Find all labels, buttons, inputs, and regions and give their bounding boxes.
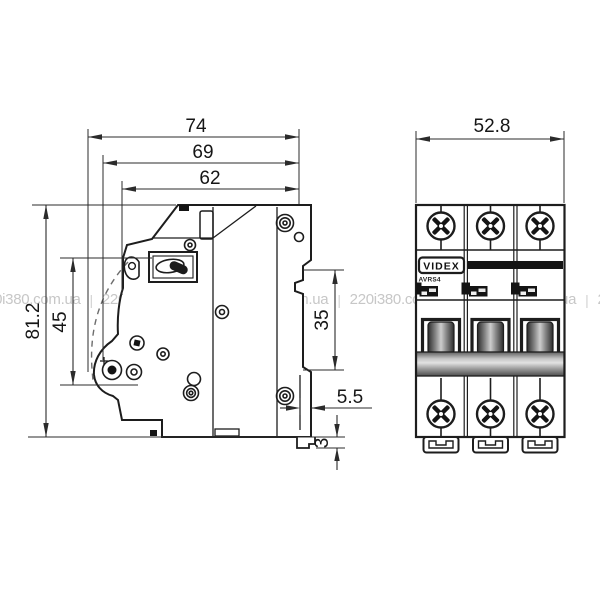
breaker-lever	[478, 322, 504, 354]
breaker-drawing: VIDEX AVRS4	[0, 0, 600, 600]
model-label: AVRS4	[419, 277, 441, 284]
dim-label-45: 45	[50, 311, 71, 332]
dim-din-slot-35: 35	[312, 270, 338, 370]
brand-logo-text: VIDEX	[423, 261, 460, 273]
side-foot-tab	[150, 430, 157, 436]
dim-label-52-8: 52.8	[474, 116, 511, 137]
dim-label-81-2: 81.2	[23, 303, 44, 340]
side-top-tab	[179, 205, 189, 211]
dim-width-52-8: 52.8	[416, 116, 564, 142]
dim-depth-69: 69	[103, 142, 299, 166]
technical-drawing-canvas: 220i380.com.ua | 220i380.com.ua | 220i38…	[0, 0, 600, 600]
dim-depth-62: 62	[122, 168, 299, 192]
dim-label-62: 62	[199, 168, 220, 189]
dim-hook-3: 3	[312, 415, 340, 470]
side-view	[92, 205, 315, 448]
front-view: VIDEX AVRS4	[416, 205, 565, 453]
dim-label-69: 69	[192, 142, 213, 163]
lever-tie-bar	[417, 352, 565, 376]
dim-label-35: 35	[312, 309, 333, 330]
dim-label-3: 3	[312, 438, 333, 449]
dim-label-74: 74	[185, 116, 207, 137]
terminal-blocks	[424, 437, 558, 453]
dim-depth-74: 74	[88, 116, 299, 140]
dim-label-5-5: 5.5	[337, 387, 363, 408]
breaker-lever	[527, 322, 553, 354]
handle-levers	[417, 320, 565, 377]
breaker-lever	[428, 322, 454, 354]
dim-height-81-2: 81.2	[23, 205, 49, 437]
front-black-band	[468, 261, 564, 269]
dim-height-45: 45	[50, 258, 76, 385]
